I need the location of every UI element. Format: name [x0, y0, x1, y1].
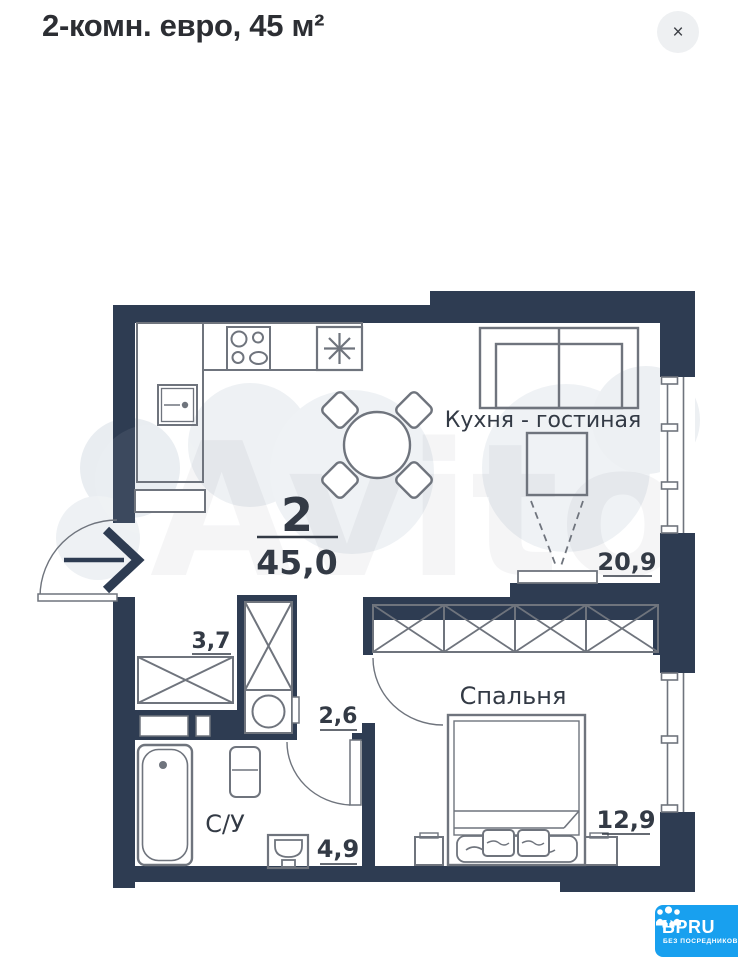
nightstand-left-icon: [415, 833, 443, 865]
image-viewer: Avito: [0, 0, 738, 960]
room-label-bathroom: С/У: [205, 810, 245, 838]
area-label-bedroom: 12,9: [596, 806, 655, 834]
bedroom-window: [660, 673, 695, 812]
wall-niches: [140, 716, 210, 736]
total-rooms-label: 2: [281, 488, 313, 542]
logo-tagline: БЕЗ ПОСРЕДНИКОВ: [663, 938, 738, 945]
room-label-bedroom: Спальня: [460, 682, 567, 710]
area-label-bathroom: 4,9: [317, 835, 360, 863]
room-label-kitchen-living: Кухня - гостиная: [445, 408, 642, 433]
stove-icon: [227, 327, 270, 370]
bathtub-icon: [138, 745, 192, 865]
bedroom-door: [373, 658, 443, 725]
bpru-logo: BPRU БЕЗ ПОСРЕДНИКОВ: [655, 905, 738, 957]
area-label-hallway: 3,7: [192, 629, 231, 654]
bathroom-door: [287, 740, 361, 805]
viewer-header: 2-комн. евро, 45 м² ×: [0, 0, 738, 64]
living-room-window: [660, 377, 695, 533]
bed-icon: [448, 715, 585, 865]
bathroom-cabinet-icon: [230, 747, 260, 797]
toilet-icon: [268, 835, 308, 868]
area-label-corridor: 2,6: [319, 704, 358, 729]
floorplan-image: Avito: [0, 0, 738, 960]
washing-machine-icon: [245, 690, 299, 733]
nightstand-right-icon: [585, 833, 617, 865]
people-icon: [655, 905, 682, 929]
hallway-wardrobe-icon: [138, 657, 233, 703]
total-area-label: 45,0: [256, 543, 337, 582]
tv-stand-icon: [518, 571, 597, 583]
fridge-icon: [317, 327, 362, 370]
close-button[interactable]: ×: [657, 11, 699, 53]
page-title: 2-комн. евро, 45 м²: [42, 8, 324, 44]
closet-icon: [245, 602, 292, 690]
close-icon: ×: [672, 23, 683, 42]
area-label-kitchen-living: 20,9: [597, 548, 656, 576]
